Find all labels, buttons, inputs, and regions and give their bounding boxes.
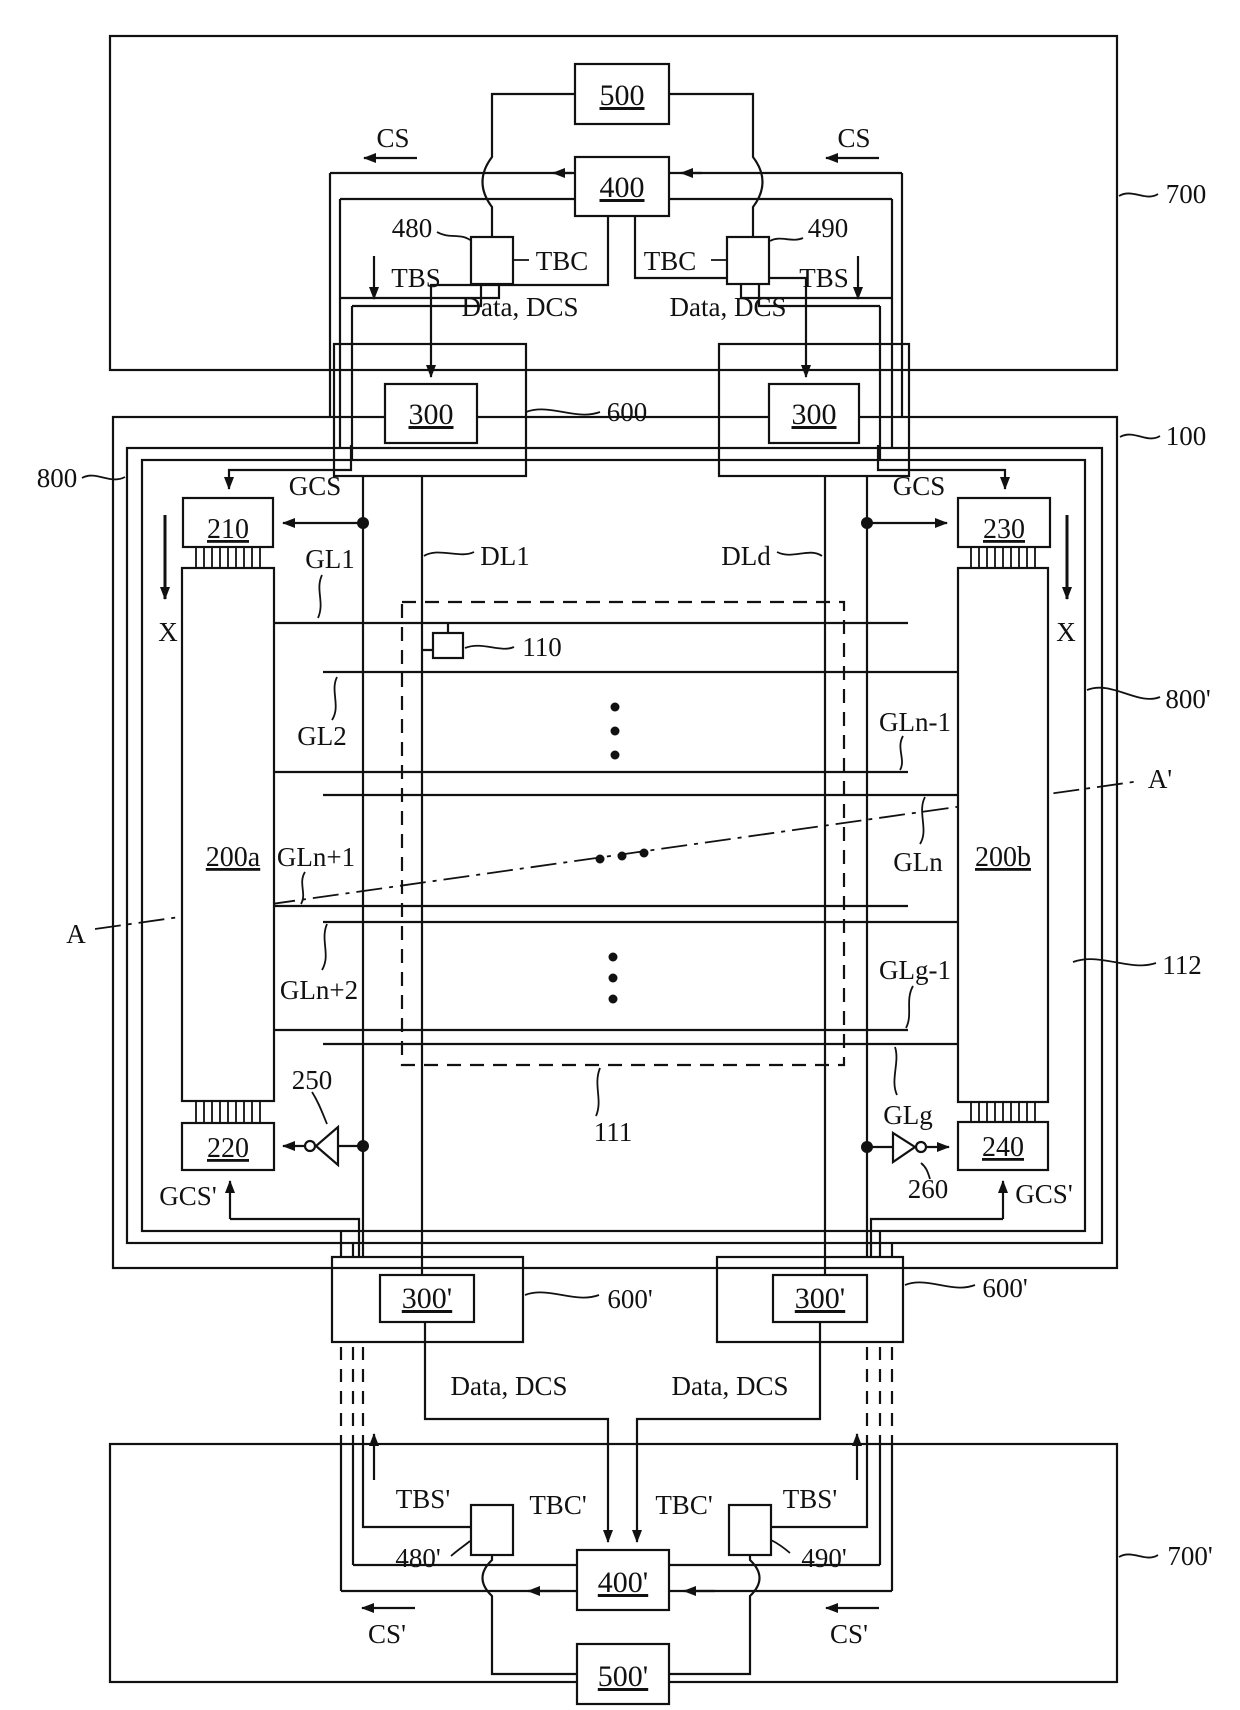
label-csp-right: CS' bbox=[830, 1619, 868, 1649]
label-600: 600 bbox=[607, 397, 648, 427]
label-gln+2: GLn+2 bbox=[280, 975, 358, 1005]
label-glg: GLg bbox=[883, 1100, 933, 1130]
label-400p: 400' bbox=[598, 1566, 648, 1599]
tbc-490-box bbox=[727, 237, 769, 284]
junction-dot bbox=[357, 1140, 369, 1152]
wire-tbc480p-to-500p bbox=[483, 1555, 578, 1674]
gate-driver-200b-block bbox=[958, 568, 1048, 1102]
squiggle-dl1 bbox=[424, 552, 474, 556]
label-x-left: X bbox=[158, 617, 178, 647]
squiggle-800 bbox=[82, 476, 125, 480]
label-tbcp-left: TBC' bbox=[529, 1490, 586, 1520]
tbc-480-box bbox=[471, 237, 513, 284]
inverter-260-bubble bbox=[916, 1142, 926, 1152]
inverter-250-triangle bbox=[316, 1127, 338, 1165]
label-500: 500 bbox=[600, 79, 645, 112]
label-a-prime: A' bbox=[1148, 764, 1172, 794]
squiggle-111 bbox=[596, 1068, 600, 1116]
label-gl2: GL2 bbox=[297, 721, 347, 751]
label-500p: 500' bbox=[598, 1660, 648, 1693]
comb-connection-210-200a bbox=[196, 547, 260, 568]
label-300-right: 300 bbox=[792, 398, 837, 431]
gcsp-path-left bbox=[230, 1219, 359, 1257]
comb-connection-230-200b bbox=[971, 547, 1035, 568]
squiggle-gln+2 bbox=[322, 924, 327, 970]
label-cs-right: CS bbox=[837, 123, 870, 153]
label-400: 400 bbox=[600, 171, 645, 204]
dashed-risers-right bbox=[867, 1347, 892, 1437]
label-800: 800 bbox=[37, 463, 78, 493]
label-dld: DLd bbox=[721, 541, 771, 571]
label-cs-left: CS bbox=[376, 123, 409, 153]
label-490p: 490' bbox=[801, 1543, 846, 1573]
squiggle-gl2 bbox=[332, 677, 337, 720]
tbc-490p-box bbox=[729, 1505, 771, 1555]
label-260: 260 bbox=[908, 1174, 949, 1204]
label-dl1: DL1 bbox=[480, 541, 530, 571]
label-600p-left: 600' bbox=[607, 1284, 652, 1314]
label-230: 230 bbox=[983, 514, 1025, 545]
label-tbsp-left: TBS' bbox=[396, 1484, 450, 1514]
tbc-480p-box bbox=[471, 1505, 513, 1555]
ellipsis-dot bbox=[640, 849, 649, 858]
squiggle-490 bbox=[770, 238, 803, 241]
label-480: 480 bbox=[392, 213, 433, 243]
squiggle-480 bbox=[437, 232, 470, 240]
label-gln-1: GLn-1 bbox=[879, 707, 951, 737]
figure-canvas: 500 400 CS CS 480 490 TBC TBC TBS TBS Da… bbox=[0, 0, 1240, 1710]
wire-500-to-tbc-480 bbox=[483, 94, 576, 237]
ellipsis-dot bbox=[611, 703, 620, 712]
label-300p-right: 300' bbox=[795, 1282, 845, 1315]
squiggle-700p bbox=[1119, 1554, 1158, 1557]
label-490: 490 bbox=[808, 213, 849, 243]
label-700p: 700' bbox=[1167, 1541, 1212, 1571]
squiggle-490p bbox=[771, 1540, 790, 1553]
label-600p-right: 600' bbox=[982, 1273, 1027, 1303]
squiggle-glg-1 bbox=[906, 986, 913, 1028]
label-glg-1: GLg-1 bbox=[879, 955, 951, 985]
label-a: A bbox=[66, 919, 86, 949]
patent-figure: 500 400 CS CS 480 490 TBC TBC TBS TBS Da… bbox=[0, 0, 1240, 1710]
label-csp-left: CS' bbox=[368, 1619, 406, 1649]
ellipsis-dot bbox=[611, 751, 620, 760]
squiggle-100 bbox=[1120, 435, 1160, 439]
label-gln: GLn bbox=[893, 847, 943, 877]
label-220: 220 bbox=[207, 1133, 249, 1164]
squiggle-600p-left bbox=[525, 1292, 599, 1297]
label-gcsp-right: GCS' bbox=[1015, 1179, 1072, 1209]
ellipsis-dot bbox=[596, 855, 605, 864]
label-240: 240 bbox=[982, 1132, 1024, 1163]
comb-connection-200a-220 bbox=[196, 1101, 260, 1123]
label-data-dcs-bottom-right: Data, DCS bbox=[672, 1371, 789, 1401]
squiggle-gl1 bbox=[318, 575, 322, 618]
squiggle-gln-1 bbox=[900, 736, 903, 770]
label-700: 700 bbox=[1166, 179, 1207, 209]
label-data-dcs-top-right: Data, DCS bbox=[670, 292, 787, 322]
label-tbsp-right: TBS' bbox=[783, 1484, 837, 1514]
label-tbc-left: TBC bbox=[536, 246, 589, 276]
inverter-260-triangle bbox=[893, 1133, 915, 1162]
label-250: 250 bbox=[292, 1065, 333, 1095]
label-300p-left: 300' bbox=[402, 1282, 452, 1315]
label-110: 110 bbox=[522, 632, 562, 662]
label-gcs-right: GCS bbox=[893, 471, 946, 501]
ellipsis-dot bbox=[609, 974, 618, 983]
label-210: 210 bbox=[207, 514, 249, 545]
gcsp-path-right bbox=[871, 1219, 1003, 1257]
label-tbcp-right: TBC' bbox=[655, 1490, 712, 1520]
label-tbs-left: TBS bbox=[391, 263, 441, 293]
label-480p: 480' bbox=[395, 1543, 440, 1573]
squiggle-gln bbox=[920, 797, 925, 844]
squiggle-600p-right bbox=[905, 1282, 975, 1287]
ellipsis-dot bbox=[618, 852, 627, 861]
ellipsis-dot bbox=[609, 953, 618, 962]
junction-dot bbox=[357, 517, 369, 529]
switch-110-box bbox=[433, 633, 463, 658]
comb-connection-200b-240 bbox=[971, 1102, 1035, 1122]
squiggle-110 bbox=[465, 646, 514, 649]
label-100: 100 bbox=[1166, 421, 1207, 451]
label-gcs-left: GCS bbox=[289, 471, 342, 501]
squiggle-glg bbox=[894, 1047, 897, 1095]
wire-tbc490p-to-500p bbox=[669, 1555, 760, 1674]
label-data-dcs-top-left: Data, DCS bbox=[462, 292, 579, 322]
label-data-dcs-bottom-left: Data, DCS bbox=[451, 1371, 568, 1401]
label-gln+1: GLn+1 bbox=[277, 842, 355, 872]
label-200b: 200b bbox=[975, 842, 1031, 873]
squiggle-800p bbox=[1087, 688, 1160, 699]
label-gl1: GL1 bbox=[305, 544, 355, 574]
label-tbs-right: TBS bbox=[799, 263, 849, 293]
ellipsis-dot bbox=[611, 727, 620, 736]
squiggle-600 bbox=[526, 409, 600, 414]
label-111: 111 bbox=[594, 1117, 633, 1147]
junction-dot bbox=[861, 1141, 873, 1153]
label-tbc-right: TBC bbox=[644, 246, 697, 276]
ellipsis-dot bbox=[609, 995, 618, 1004]
inverter-250-bubble bbox=[305, 1141, 315, 1151]
label-800p: 800' bbox=[1165, 684, 1210, 714]
squiggle-dld bbox=[777, 552, 822, 556]
junction-dot bbox=[861, 517, 873, 529]
label-200a: 200a bbox=[206, 842, 261, 873]
dashed-risers-left bbox=[341, 1347, 363, 1437]
label-x-right: X bbox=[1056, 617, 1076, 647]
gate-driver-200a-block bbox=[182, 568, 274, 1101]
wire-500-to-tbc-490 bbox=[669, 94, 763, 237]
squiggle-700 bbox=[1119, 193, 1158, 196]
label-300-left: 300 bbox=[409, 398, 454, 431]
label-112: 112 bbox=[1162, 950, 1202, 980]
label-gcsp-left: GCS' bbox=[159, 1181, 216, 1211]
squiggle-250 bbox=[312, 1092, 327, 1124]
squiggle-480p bbox=[451, 1541, 470, 1556]
